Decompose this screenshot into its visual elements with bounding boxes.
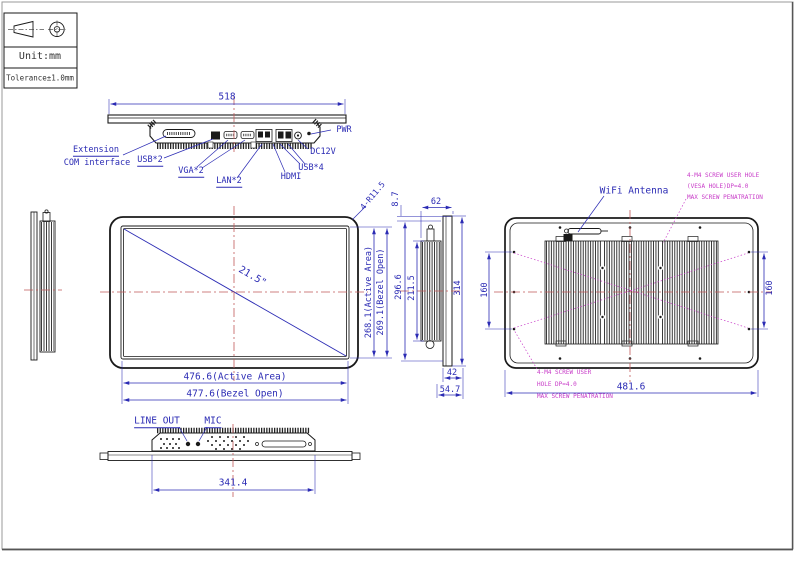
tolerance-label: Tolerance±1.0mm	[6, 74, 74, 82]
dim-height-bezel: 269.1(Bezel Open)	[377, 249, 386, 336]
lan-ports	[256, 130, 272, 142]
dim-rear-width: 481.6	[617, 382, 646, 392]
rear-view	[485, 196, 772, 397]
usb2-port	[211, 132, 220, 140]
dim-vesa-right: 160	[766, 280, 775, 295]
label-dc12v: DC12V	[310, 148, 336, 157]
vent-holes	[160, 436, 249, 450]
dim-body-height: 296.6	[395, 274, 404, 300]
label-hdmi: HDMI	[281, 173, 301, 182]
antenna-mount	[427, 229, 434, 241]
label-usb2: USB*2	[137, 156, 163, 167]
left-side-view	[24, 210, 62, 360]
mic-jack	[196, 442, 200, 446]
power-button	[307, 132, 311, 136]
label-wifi-antenna: WiFi Antenna	[600, 186, 669, 196]
usb4-ports	[276, 130, 292, 142]
note-vesa-top-line3: MAX SCREW PENATRATION	[687, 195, 763, 201]
dc-jack	[295, 132, 302, 139]
unit-label: Unit:mm	[19, 52, 61, 62]
label-com-interface: COM interface	[64, 159, 131, 168]
label-vga2: VGA*2	[178, 167, 204, 178]
label-mic: MIC	[204, 416, 221, 428]
line-out-jack	[186, 442, 190, 446]
dim-heatsink-height: 211.5	[408, 275, 417, 301]
screen-diagonal	[124, 229, 346, 356]
label-pwr: PWR	[336, 126, 351, 135]
note-vesa-top-line1: 4-M4 SCREW USER HOLE	[687, 173, 759, 179]
extension-com-connector	[163, 130, 195, 138]
dim-depth: 62	[431, 198, 441, 207]
label-usb4: USB*4	[298, 164, 324, 173]
heatsink-fins	[545, 241, 718, 344]
label-extension: Extension	[73, 146, 119, 157]
drawing-sheet: Unit:mm Tolerance±1.0mm 518 Extension CO…	[0, 0, 799, 565]
dim-vesa-left: 160	[481, 282, 490, 297]
note-vesa-bottom-line1: 4-M4 SCREW USER	[537, 370, 591, 376]
dim-width-bezel: 477.6(Bezel Open)	[186, 389, 283, 399]
dim-518: 518	[218, 92, 235, 102]
dim-total-height: 314	[454, 280, 463, 295]
label-lan2: LAN*2	[216, 177, 242, 188]
note-vesa-top-line2: (VESA HOLE)DP=4.0	[687, 184, 748, 190]
dim-rear-offset: 42	[447, 369, 457, 378]
antenna-mount	[43, 213, 50, 222]
wifi-antenna-shape	[564, 229, 609, 242]
first-angle-projection-icon	[8, 21, 66, 39]
note-vesa-bottom-line3: MAX SCREW PENATRATION	[537, 394, 613, 400]
vga-ports	[224, 132, 254, 139]
label-line-out: LINE OUT	[134, 416, 180, 428]
dim-width-active: 476.6(Active Area)	[184, 372, 287, 382]
note-vesa-bottom-line2: HOLE DP=4.0	[537, 382, 577, 388]
dim-bezel-lip: 8.7	[392, 191, 401, 206]
dim-total-depth: 54.7	[440, 386, 460, 395]
dim-height-active: 268.1(Active Area)	[365, 246, 374, 338]
dim-bottom-width: 341.4	[219, 478, 248, 488]
